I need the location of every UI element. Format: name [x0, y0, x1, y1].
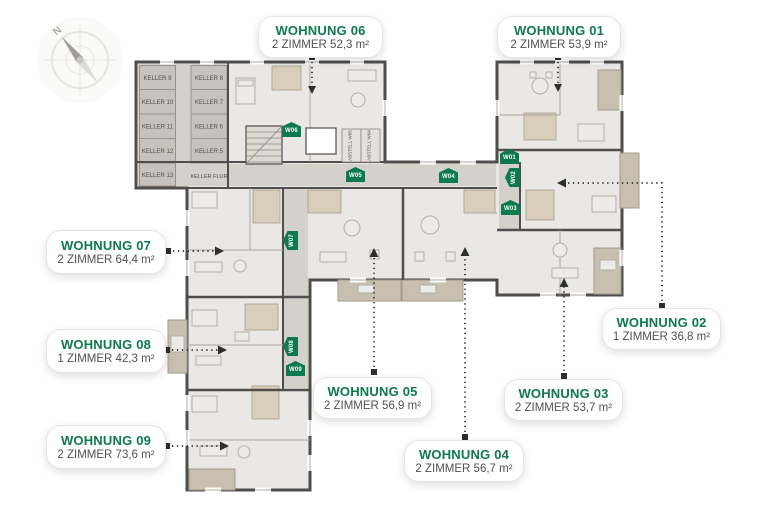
keller-flur-label: KELLER FLUR — [191, 174, 228, 180]
stairs-icon — [246, 126, 282, 164]
balcony — [189, 469, 235, 490]
apartment-label-w03[interactable]: WOHNUNG 03 2 ZIMMER 53,7 m² — [504, 379, 623, 421]
keller-cell-label: KELLER 8 — [195, 76, 224, 82]
label-title: WOHNUNG 04 — [419, 447, 509, 462]
label-title: WOHNUNG 08 — [61, 337, 151, 352]
apartment-label-w06[interactable]: WOHNUNG 06 2 ZIMMER 52,3 m² — [258, 16, 383, 58]
elevator — [306, 128, 336, 154]
label-subtitle: 2 ZIMMER 52,3 m² — [272, 39, 369, 51]
label-title: WOHNUNG 07 — [61, 238, 151, 253]
bathroom — [526, 190, 554, 220]
balcony — [620, 153, 639, 208]
bathroom — [524, 113, 556, 140]
keller-cell-label: KELLER 7 — [195, 100, 224, 106]
label-title: WOHNUNG 01 — [514, 23, 604, 38]
storage-rooms: ABSTELL W05 ABSTELL W04 — [342, 129, 380, 162]
bathroom — [272, 66, 301, 90]
label-subtitle: 1 ZIMMER 36,8 m² — [613, 331, 710, 343]
bathroom — [464, 190, 495, 213]
label-title: WOHNUNG 05 — [327, 384, 417, 399]
label-subtitle: 2 ZIMMER 64,4 m² — [57, 254, 154, 266]
label-subtitle: 2 ZIMMER 53,9 m² — [510, 39, 607, 51]
storage-label: ABSTELL W04 — [367, 130, 372, 161]
apartment-label-w01[interactable]: WOHNUNG 01 2 ZIMMER 53,9 m² — [497, 16, 621, 58]
keller-cell-label: KELLER 13 — [142, 173, 174, 179]
keller-cell-label: KELLER 12 — [142, 149, 174, 155]
label-title: WOHNUNG 09 — [61, 433, 151, 448]
compass-rose: N — [34, 14, 126, 106]
keller-cell-label: KELLER 9 — [143, 76, 172, 82]
keller-cell-label: KELLER 6 — [195, 125, 224, 131]
label-title: WOHNUNG 06 — [275, 23, 365, 38]
label-title: WOHNUNG 02 — [616, 315, 706, 330]
apartment-label-w09[interactable]: WOHNUNG 09 2 ZIMMER 73,6 m² — [46, 425, 166, 469]
apartment-label-w05[interactable]: WOHNUNG 05 2 ZIMMER 56,9 m² — [313, 377, 432, 419]
label-subtitle: 2 ZIMMER 56,9 m² — [324, 400, 421, 412]
keller-cell-label: KELLER 11 — [142, 125, 174, 131]
storage-label: ABSTELL W05 — [348, 130, 353, 161]
apartment-label-w04[interactable]: WOHNUNG 04 2 ZIMMER 56,7 m² — [404, 440, 524, 482]
label-subtitle: 2 ZIMMER 56,7 m² — [415, 463, 512, 475]
floorplan-page: KELLER 9 KELLER 10 KELLER 11 KELLER 12 K… — [0, 0, 768, 512]
label-title: WOHNUNG 03 — [518, 386, 608, 401]
bathroom — [253, 190, 280, 223]
keller-cell-label: KELLER 5 — [195, 149, 224, 155]
arrow-marker — [371, 369, 377, 375]
bathroom — [308, 190, 341, 213]
label-subtitle: 1 ZIMMER 42,3 m² — [57, 353, 154, 365]
balcony — [594, 248, 621, 294]
label-subtitle: 2 ZIMMER 73,6 m² — [57, 449, 154, 461]
balcony — [598, 70, 621, 110]
bathroom — [245, 304, 278, 330]
label-subtitle: 2 ZIMMER 53,7 m² — [515, 402, 612, 414]
apartment-label-w08[interactable]: WOHNUNG 08 1 ZIMMER 42,3 m² — [46, 329, 166, 373]
apartment-label-w07[interactable]: WOHNUNG 07 2 ZIMMER 64,4 m² — [46, 230, 166, 274]
keller-cell-label: KELLER 10 — [142, 100, 174, 106]
apartment-label-w02[interactable]: WOHNUNG 02 1 ZIMMER 36,8 m² — [602, 308, 721, 350]
